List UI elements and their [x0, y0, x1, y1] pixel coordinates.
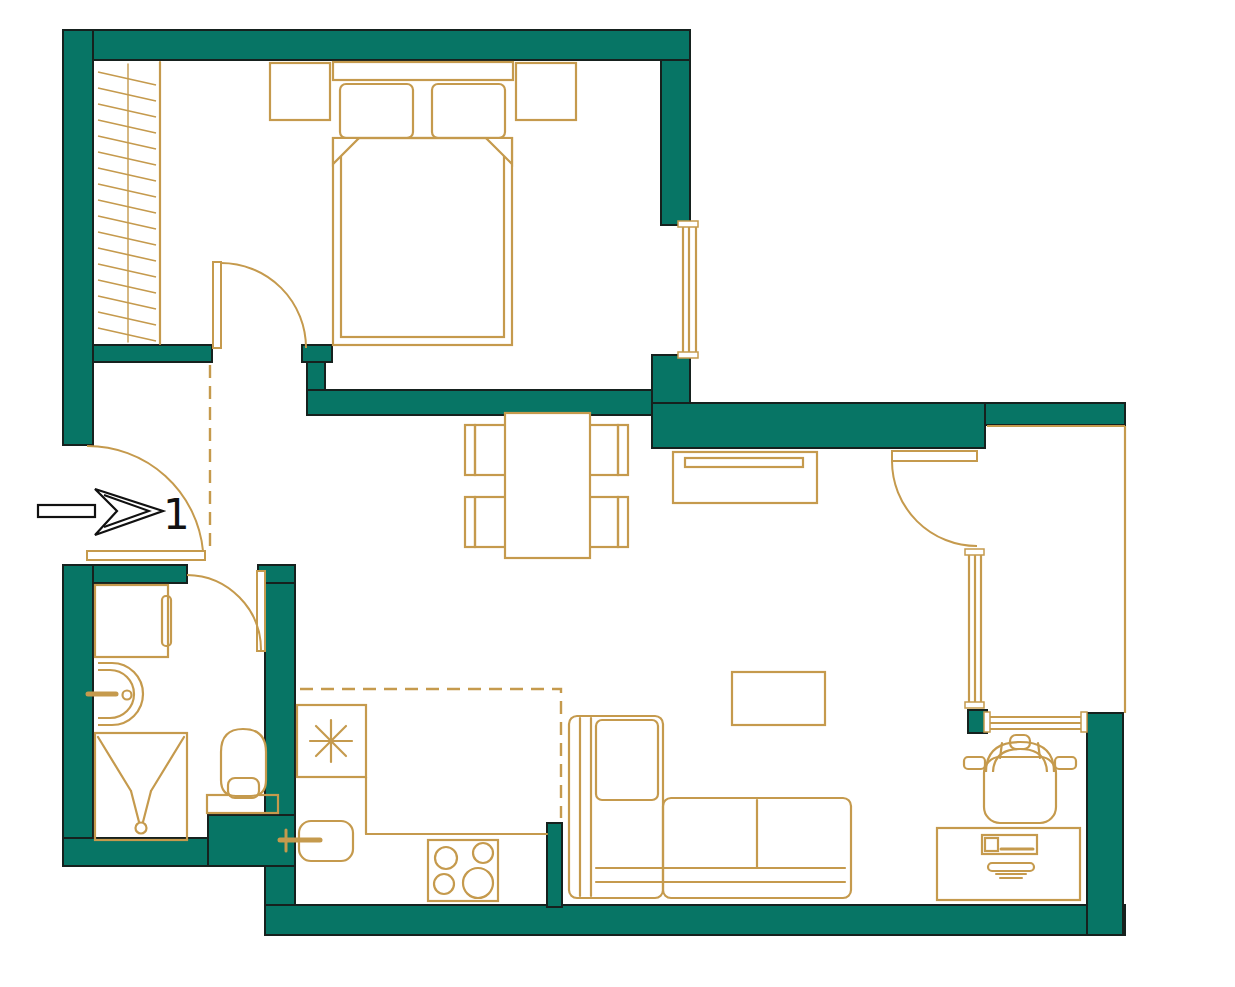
corner-sofa — [569, 716, 663, 898]
corner-sofa — [569, 716, 851, 898]
window-loggia-south-cap — [1081, 712, 1087, 732]
washing-machine — [162, 596, 171, 646]
tv-console — [673, 452, 817, 503]
stove — [463, 868, 493, 898]
wall-bottom — [265, 905, 1125, 935]
double-bed — [516, 63, 576, 120]
dining-table-with-chairs — [618, 425, 628, 475]
wardrobe — [98, 184, 156, 197]
tv-console — [673, 452, 817, 503]
window-loggia-west-cap — [965, 702, 984, 708]
corner-sofa — [596, 720, 658, 800]
wardrobe — [98, 312, 156, 325]
furniture-layer — [88, 62, 1080, 901]
double-bed — [340, 84, 413, 138]
floor-plan-page: 1 — [0, 0, 1235, 987]
floor-plan: 1 — [0, 0, 1235, 987]
wardrobe — [98, 248, 156, 261]
armchair — [984, 757, 1056, 823]
double-bed — [486, 138, 512, 164]
wardrobe — [98, 296, 156, 309]
double-bed — [270, 62, 576, 345]
washing-machine — [95, 585, 171, 657]
wall-right-lower — [1087, 713, 1123, 935]
armchair — [964, 757, 985, 769]
door-loggia-leaf — [892, 451, 977, 461]
double-bed — [341, 138, 504, 337]
shower — [98, 737, 131, 791]
stove — [473, 843, 493, 863]
double-bed — [333, 138, 512, 345]
desk — [985, 838, 998, 851]
kitchen-counter — [366, 777, 547, 834]
door-bedroom-leaf — [213, 262, 221, 348]
coffee-table — [732, 672, 825, 725]
shower — [95, 733, 187, 840]
wardrobe — [98, 216, 156, 229]
stove — [435, 847, 457, 869]
bathroom-sink — [88, 663, 143, 725]
door-loggia-swing — [892, 461, 977, 546]
double-bed — [432, 84, 505, 138]
wall-top — [63, 30, 690, 60]
window-bedroom-cap — [678, 221, 698, 227]
window-loggia-south-cap — [984, 712, 990, 732]
double-bed — [333, 138, 359, 164]
wall-living-north — [652, 403, 985, 448]
wall-bedroom-right-upper — [661, 60, 690, 225]
desk — [937, 828, 1080, 900]
dining-table-with-chairs — [505, 413, 590, 558]
tv-console — [685, 458, 803, 467]
wardrobe — [98, 152, 156, 165]
wardrobe — [98, 62, 160, 344]
wall-left-upper — [63, 30, 93, 445]
windows-layer — [678, 221, 1125, 732]
zone-kitchen-boundary — [300, 689, 561, 818]
dining-table-with-chairs — [465, 497, 475, 547]
armchair — [1055, 757, 1076, 769]
wardrobe — [98, 104, 156, 117]
coffee-table — [732, 672, 825, 725]
wardrobe — [98, 200, 156, 213]
wardrobe — [98, 136, 156, 149]
wardrobe — [98, 232, 156, 245]
shower — [131, 791, 139, 822]
wall-loggia-north — [985, 403, 1125, 425]
armchair — [964, 735, 1076, 823]
door-bedroom-swing — [221, 263, 306, 348]
stove — [434, 874, 454, 894]
shower — [151, 737, 184, 791]
door-entrance-leaf — [87, 551, 205, 560]
wall-hall-divider — [93, 345, 212, 362]
door-bathroom-swing — [187, 575, 261, 650]
wall-bedroom-door-connector — [307, 362, 325, 392]
refrigerator — [297, 705, 366, 777]
wall-bath-south — [63, 838, 208, 866]
wall-bath-right — [265, 583, 295, 815]
wall-bath-north-left — [93, 565, 187, 583]
wall-bath-left — [63, 565, 93, 866]
wardrobe — [98, 168, 156, 181]
wall-bedroom-south — [307, 390, 661, 415]
shower — [136, 823, 147, 834]
entrance-annotation: 1 — [38, 489, 190, 539]
entrance-arrow-shaft — [38, 505, 95, 517]
wardrobe — [98, 280, 156, 293]
wardrobe — [98, 72, 156, 85]
window-loggia-west-cap — [965, 549, 984, 555]
wardrobe — [98, 120, 156, 133]
shower — [143, 791, 151, 822]
bathroom-sink — [123, 691, 132, 700]
wardrobe — [98, 264, 156, 277]
desk — [988, 863, 1034, 871]
double-bed — [333, 62, 513, 80]
wall-kitchen-post — [547, 823, 562, 907]
wardrobe — [98, 88, 156, 101]
window-bedroom-cap — [678, 352, 698, 358]
dining-table-with-chairs — [618, 497, 628, 547]
walls-layer — [63, 30, 1125, 935]
shower — [95, 733, 187, 840]
dining-table-with-chairs — [465, 425, 475, 475]
entrance-number: 1 — [163, 490, 190, 539]
wardrobe — [98, 328, 156, 341]
washing-machine — [95, 585, 168, 657]
dining-table-with-chairs — [465, 413, 628, 558]
double-bed — [270, 63, 330, 120]
stove — [428, 840, 498, 901]
